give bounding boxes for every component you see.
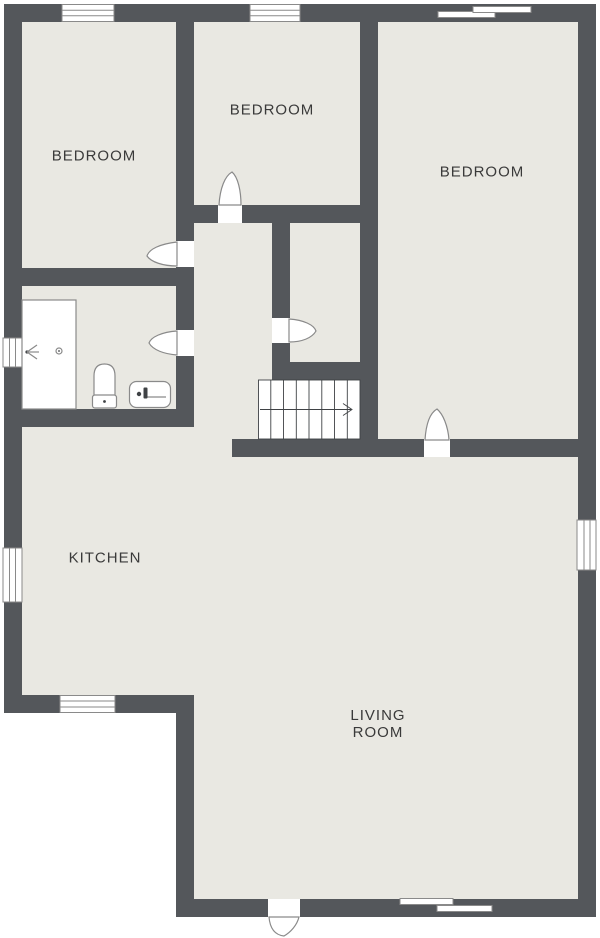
wall-topbedroom-bottom-left	[176, 205, 218, 223]
right-window-living-room	[577, 520, 596, 570]
room-label-living-room: LIVING ROOM	[328, 707, 428, 741]
stairs	[259, 380, 361, 439]
sink	[130, 382, 171, 408]
wall-rightbedroom-west	[360, 18, 378, 457]
top-window-left-bedroom	[62, 5, 114, 22]
shower	[22, 300, 76, 409]
wall-bathroom-bottom	[4, 409, 194, 427]
room-label-bedroom-right: BEDROOM	[440, 164, 525, 181]
wall-closet-west-upper	[272, 205, 290, 318]
wall-stairs-bottom	[232, 439, 424, 457]
wall-bathroom-east-upper	[176, 286, 194, 330]
top-window-top-bedroom	[250, 5, 300, 22]
room-label-bedroom-top: BEDROOM	[230, 102, 315, 119]
wall-rightbedroom-bottom	[450, 439, 578, 457]
wall-bedroom-bathroom	[4, 268, 194, 286]
room-label-kitchen: KITCHEN	[69, 550, 142, 567]
floor-plan-canvas	[0, 0, 600, 938]
toilet	[93, 364, 117, 408]
wall-topbedroom-bottom-right	[242, 205, 378, 223]
floor-plan: BEDROOM BEDROOM BEDROOM KITCHEN LIVING R…	[0, 0, 600, 938]
left-window-bathroom	[3, 338, 22, 367]
left-window-kitchen	[3, 548, 22, 602]
wall-closet-bottom	[272, 362, 378, 380]
wall-right	[578, 4, 596, 917]
wall-bottom	[176, 899, 596, 917]
bottom-window-kitchen	[60, 696, 115, 713]
room-label-bedroom-left: BEDROOM	[52, 148, 137, 165]
wall-living-west	[176, 695, 194, 917]
front-door	[268, 899, 300, 936]
